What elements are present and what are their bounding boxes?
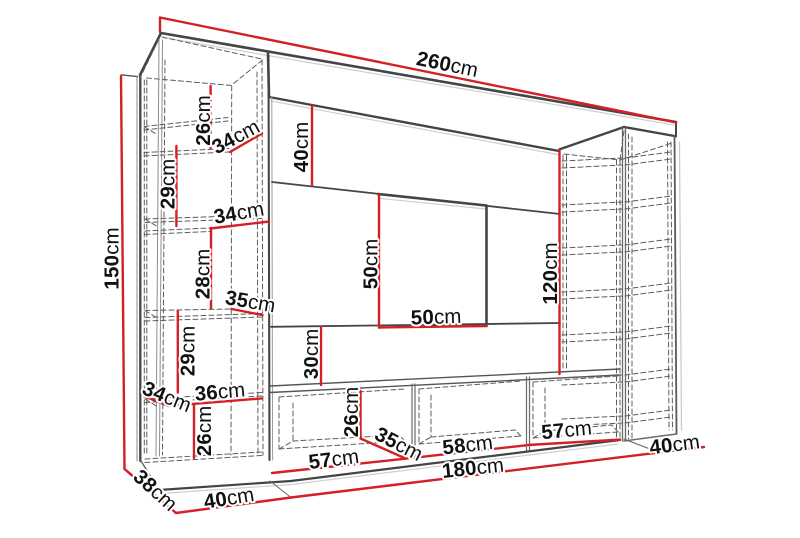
svg-text:50cm: 50cm xyxy=(410,305,461,330)
svg-text:57cm: 57cm xyxy=(540,416,593,444)
svg-text:120cm: 120cm xyxy=(539,242,562,304)
svg-text:150cm: 150cm xyxy=(101,227,124,289)
svg-text:29cm: 29cm xyxy=(177,326,200,377)
svg-text:26cm: 26cm xyxy=(193,406,216,457)
svg-text:30cm: 30cm xyxy=(300,329,323,380)
svg-text:40cm: 40cm xyxy=(290,122,313,173)
svg-text:26cm: 26cm xyxy=(340,387,363,438)
svg-text:28cm: 28cm xyxy=(192,249,215,300)
svg-text:29cm: 29cm xyxy=(157,159,180,210)
svg-text:36cm: 36cm xyxy=(194,378,246,405)
svg-text:50cm: 50cm xyxy=(360,239,383,290)
